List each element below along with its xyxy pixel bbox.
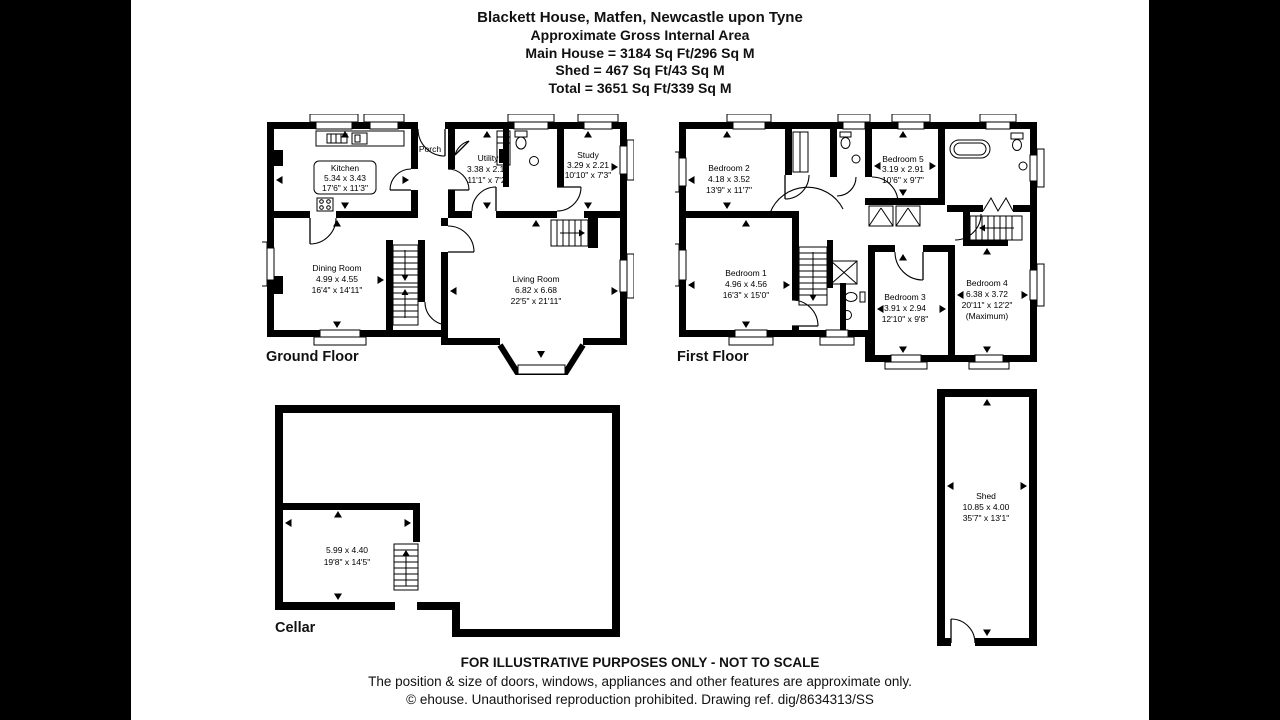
right-black-bar xyxy=(1149,0,1280,720)
utility-label: Utility xyxy=(478,153,500,163)
stove-icon xyxy=(317,198,333,211)
svg-text:16'3" x 15'0": 16'3" x 15'0" xyxy=(723,290,770,300)
svg-text:12'10" x 9'8": 12'10" x 9'8" xyxy=(882,314,929,324)
study-label: Study xyxy=(577,150,599,160)
cellar-walls xyxy=(275,405,620,637)
ground-floor-label: Ground Floor xyxy=(266,349,359,365)
svg-text:22'5" x 21'11": 22'5" x 21'11" xyxy=(511,296,562,306)
svg-text:16'4" x 14'11": 16'4" x 14'11" xyxy=(312,285,363,295)
shed-door xyxy=(951,619,975,643)
bedroom5-label: Bedroom 5 xyxy=(882,154,924,164)
svg-text:5.34 x 3.43: 5.34 x 3.43 xyxy=(324,173,366,183)
svg-text:35'7" x 13'1": 35'7" x 13'1" xyxy=(963,513,1010,523)
ground-floor-plan: Kitchen 5.34 x 3.43 17'6" x 11'3" Porch … xyxy=(262,114,634,384)
cellar-room-imperial: 19'8" x 14'5" xyxy=(324,557,371,567)
svg-text:17'6" x 11'3": 17'6" x 11'3" xyxy=(322,183,368,193)
living-staircase xyxy=(551,220,588,246)
svg-text:10'10" x 7'3": 10'10" x 7'3" xyxy=(565,170,612,180)
bathroom-fixtures xyxy=(950,133,1027,211)
footer-copyright: © ehouse. Unauthorised reproduction proh… xyxy=(131,691,1149,710)
shed-room-labels: Shed 10.85 x 4.00 35'7" x 13'1" xyxy=(963,491,1010,523)
svg-text:(Maximum): (Maximum) xyxy=(966,311,1009,321)
first-floor-plan: Bedroom 2 4.18 x 3.52 13'9" x 11'7" Bedr… xyxy=(675,114,1045,370)
topright-staircase xyxy=(970,216,1022,240)
header-area-total: Total = 3651 Sq Ft/339 Sq M xyxy=(131,80,1149,98)
svg-text:10.85 x 4.00: 10.85 x 4.00 xyxy=(963,502,1010,512)
page-title: Blackett House, Matfen, Newcastle upon T… xyxy=(131,8,1149,27)
header-area-shed: Shed = 467 Sq Ft/43 Sq M xyxy=(131,62,1149,80)
shed-label: Shed xyxy=(976,491,996,501)
bedroom4-label: Bedroom 4 xyxy=(966,278,1008,288)
dining-label: Dining Room xyxy=(312,263,361,273)
porch-label: Porch xyxy=(419,144,441,154)
bedroom2-label: Bedroom 2 xyxy=(708,163,750,173)
svg-text:6.82 x 6.68: 6.82 x 6.68 xyxy=(515,285,557,295)
cellar-room-metric: 5.99 x 4.40 xyxy=(326,545,368,555)
footer-disclaimer: FOR ILLUSTRATIVE PURPOSES ONLY - NOT TO … xyxy=(131,654,1149,673)
bedroom3-label: Bedroom 3 xyxy=(884,292,926,302)
cellar-plan: 5.99 x 4.40 19'8" x 14'5" xyxy=(268,398,632,646)
kitchen-counter xyxy=(316,131,404,146)
footer-approximate-note: The position & size of doors, windows, a… xyxy=(131,673,1149,692)
first-floor-label: First Floor xyxy=(677,349,749,365)
svg-text:3.38 x 2.19: 3.38 x 2.19 xyxy=(467,164,509,174)
ground-room-labels: Kitchen 5.34 x 3.43 17'6" x 11'3" Porch … xyxy=(312,144,612,306)
cellar-staircase xyxy=(394,544,418,590)
bay-window xyxy=(500,345,583,374)
shed-plan: Shed 10.85 x 4.00 35'7" x 13'1" xyxy=(928,383,1045,653)
svg-text:3.29 x 2.21: 3.29 x 2.21 xyxy=(567,160,609,170)
cellar-label: Cellar xyxy=(275,620,315,636)
floorplan-page: Blackett House, Matfen, Newcastle upon T… xyxy=(0,0,1280,720)
left-black-bar xyxy=(0,0,131,720)
cellar-dimension-arrows xyxy=(285,511,411,600)
svg-text:10'6" x 9'7": 10'6" x 9'7" xyxy=(882,175,924,185)
svg-text:13'9" x 11'7": 13'9" x 11'7" xyxy=(706,185,752,195)
svg-text:4.99 x 4.55: 4.99 x 4.55 xyxy=(316,274,358,284)
header-area-main: Main House = 3184 Sq Ft/296 Sq M xyxy=(131,45,1149,63)
svg-text:11'1" x 7'2": 11'1" x 7'2" xyxy=(467,175,508,185)
center-staircase xyxy=(799,247,827,305)
dining-staircase xyxy=(393,245,418,325)
svg-text:3.91 x 2.94: 3.91 x 2.94 xyxy=(884,303,926,313)
svg-text:4.96 x 4.56: 4.96 x 4.56 xyxy=(725,279,767,289)
bedroom1-label: Bedroom 1 xyxy=(725,268,767,278)
header-block: Blackett House, Matfen, Newcastle upon T… xyxy=(131,8,1149,97)
header-subtitle: Approximate Gross Internal Area xyxy=(131,27,1149,45)
living-label: Living Room xyxy=(512,274,559,284)
svg-text:4.18 x 3.52: 4.18 x 3.52 xyxy=(708,174,750,184)
kitchen-label: Kitchen xyxy=(331,163,360,173)
svg-text:6.38 x 3.72: 6.38 x 3.72 xyxy=(966,289,1008,299)
svg-text:20'11" x 12'2": 20'11" x 12'2" xyxy=(962,300,1013,310)
footer-block: FOR ILLUSTRATIVE PURPOSES ONLY - NOT TO … xyxy=(131,654,1149,710)
svg-text:3.19 x 2.91: 3.19 x 2.91 xyxy=(882,164,924,174)
cellar-room-labels: 5.99 x 4.40 19'8" x 14'5" xyxy=(324,545,371,567)
